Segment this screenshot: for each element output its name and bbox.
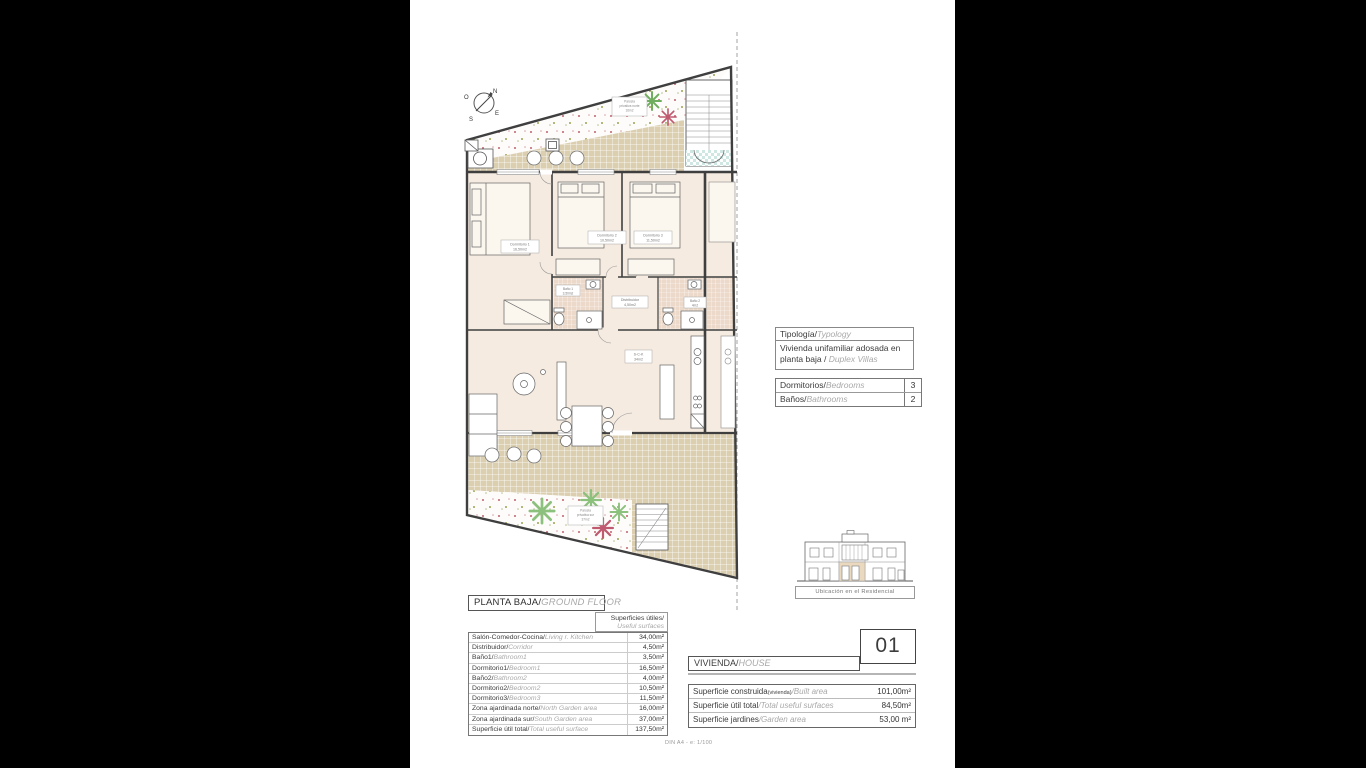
svg-text:E: E <box>495 111 499 117</box>
bathrooms-row: Baños/Bathrooms 2 <box>776 393 921 407</box>
typology-title-en: Typology <box>817 329 851 339</box>
garden-area-row: Superficie jardines/Garden area 53,00 m² <box>689 713 915 727</box>
table-row: Salón-Comedor-Cocina/Living r. Kitchen34… <box>469 633 667 643</box>
svg-text:11,50m2: 11,50m2 <box>646 239 660 243</box>
bedrooms-row: Dormitorios/Bedrooms 3 <box>776 379 921 393</box>
location-caption: Ubicación en el Residencial <box>795 586 915 599</box>
svg-text:3,50m2: 3,50m2 <box>563 291 574 295</box>
table-row: Baño1/Bathroom13,50m² <box>469 653 667 663</box>
svg-text:S: S <box>469 117 473 123</box>
table-row: Dormitorio1/Bedroom116,50m² <box>469 664 667 674</box>
svg-text:Dormitorio 1: Dormitorio 1 <box>510 243 530 247</box>
svg-text:4m2: 4m2 <box>692 303 698 307</box>
svg-text:Parcela: Parcela <box>580 509 591 513</box>
surfaces-table: Salón-Comedor-Cocina/Living r. Kitchen34… <box>468 632 668 736</box>
unit-number-box: 01 <box>860 629 916 664</box>
svg-text:S-C-K: S-C-K <box>634 353 644 357</box>
built-area-row: Superficie construida(vivienda)/Built ar… <box>689 685 915 699</box>
table-row: Dormitorio3/Bedroom311,50m² <box>469 694 667 704</box>
svg-text:Baño 1: Baño 1 <box>563 287 573 291</box>
sheet-page: N E S O Dormitorio 1 16,50m2 Dormitorio … <box>410 0 955 768</box>
svg-text:Distribuidor: Distribuidor <box>621 298 640 302</box>
staircase-top <box>686 80 732 166</box>
typology-value: Vivienda unifamiliar adosada en planta b… <box>776 341 913 369</box>
svg-text:37m2: 37m2 <box>582 518 590 522</box>
scale-note: DIN A4 - e: 1/100 <box>665 740 785 746</box>
svg-text:O: O <box>464 95 469 101</box>
svg-text:16,50m2: 16,50m2 <box>513 248 527 252</box>
house-header-rule <box>688 673 916 675</box>
useful-total-row: Superficie útil total/Total useful surfa… <box>689 699 915 713</box>
table-row: Zona ajardinada norte/North Garden area1… <box>469 704 667 714</box>
svg-text:Baño 2: Baño 2 <box>690 299 700 303</box>
typology-header: Tipología/Typology <box>776 328 913 341</box>
typology-title-es: Tipología/ <box>780 329 817 339</box>
table-row: Baño2/Bathroom24,00m² <box>469 674 667 684</box>
svg-text:Dormitorio 2: Dormitorio 2 <box>597 234 617 238</box>
svg-text:Dormitorio 3: Dormitorio 3 <box>643 234 663 238</box>
bedrooms-count: 3 <box>904 379 921 392</box>
svg-text:privativa sur: privativa sur <box>577 513 595 517</box>
svg-text:4,50m2: 4,50m2 <box>624 303 636 307</box>
table-row: Distribuidor/Corridor4,50m² <box>469 643 667 653</box>
svg-text:privativa norte: privativa norte <box>619 104 639 108</box>
compass-icon: N E S O <box>464 89 499 123</box>
floor-title: PLANTA BAJA/GROUND FLOOR <box>468 595 605 611</box>
floor-plan-drawing: N E S O Dormitorio 1 16,50m2 Dormitorio … <box>455 28 757 618</box>
svg-text:N: N <box>493 89 497 95</box>
totals-table: Superficie construida(vivienda)/Built ar… <box>688 684 916 728</box>
counts-table: Dormitorios/Bedrooms 3 Baños/Bathrooms 2 <box>775 378 922 407</box>
svg-text:34m2: 34m2 <box>634 358 643 362</box>
house-header: VIVIENDA/HOUSE <box>688 656 860 671</box>
table-row-total: Superficie útil total/Total useful surfa… <box>469 725 667 735</box>
svg-text:16m2: 16m2 <box>626 109 634 113</box>
table-row: Zona ajardinada sur/South Garden area37,… <box>469 715 667 725</box>
table-row: Dormitorio2/Bedroom210,50m² <box>469 684 667 694</box>
svg-text:10,50m2: 10,50m2 <box>600 239 614 243</box>
bathrooms-count: 2 <box>904 393 921 407</box>
typology-box: Tipología/Typology Vivienda unifamiliar … <box>775 327 914 370</box>
useful-surfaces-label: Superficies útiles/ Useful surfaces <box>595 612 668 632</box>
residential-elevation-drawing <box>795 528 915 585</box>
svg-text:Parcela: Parcela <box>624 100 635 104</box>
